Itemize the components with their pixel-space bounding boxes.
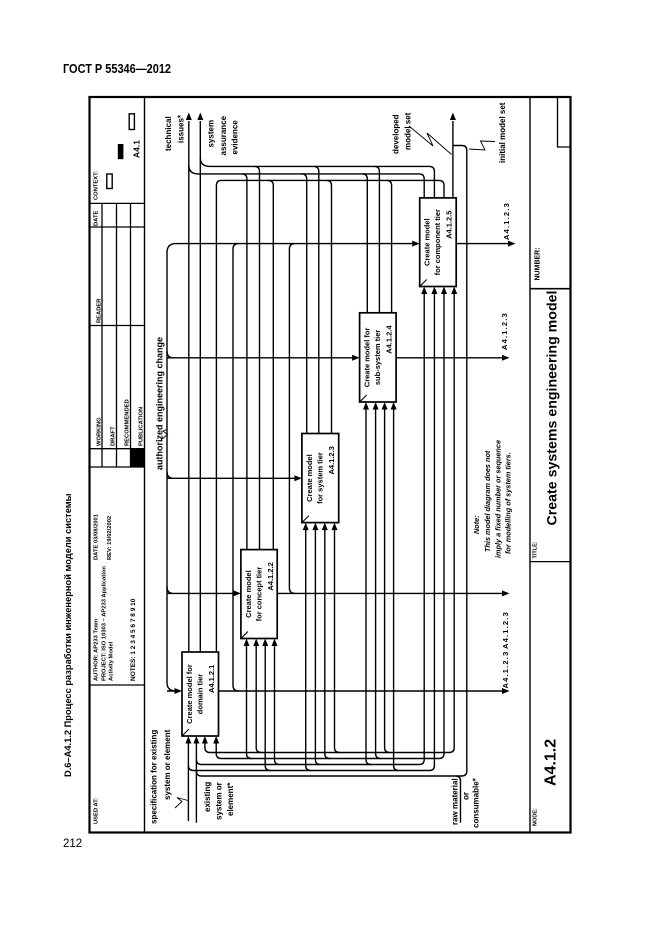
svg-text:Create model: Create model: [244, 570, 253, 618]
svg-text:AUTHOR: AP233 Team: AUTHOR: AP233 Team: [94, 619, 100, 681]
svg-text:NOTES: 1 2 3 4 5 6 7 8: NOTES: 1 2 3 4 5 6 7 8 9 10: [130, 598, 137, 681]
svg-text:evidence: evidence: [231, 120, 240, 155]
svg-text:developed: developed: [392, 114, 401, 154]
svg-text:issues*: issues*: [177, 114, 186, 143]
svg-text:A4.1.2.3: A4.1.2.3: [327, 446, 336, 474]
svg-text:WORKING: WORKING: [97, 417, 103, 446]
svg-text:for modelling of system tiers.: for modelling of system tiers.: [504, 452, 513, 554]
svg-text:specification for existing: specification for existing: [150, 730, 159, 824]
svg-text:sub-system tier: sub-system tier: [373, 330, 382, 386]
svg-text:Create model for: Create model for: [185, 664, 194, 724]
svg-text:NODE:: NODE:: [533, 808, 539, 826]
svg-text:REV: 19/02/2002: REV: 19/02/2002: [107, 516, 113, 560]
svg-text:212: 212: [63, 838, 82, 850]
svg-text:PUBLICATION: PUBLICATION: [139, 407, 145, 446]
svg-text:A4.1.2.3: A4.1.2.3: [501, 611, 510, 649]
svg-text:assurance: assurance: [219, 115, 228, 155]
svg-text:USED AT:: USED AT:: [94, 798, 100, 824]
svg-text:or: or: [462, 792, 471, 800]
svg-text:initial model set: initial model set: [498, 102, 507, 163]
svg-text:DRAFT: DRAFT: [111, 426, 117, 446]
svg-text:for system tier: for system tier: [315, 452, 324, 504]
svg-text:technical: technical: [164, 116, 173, 151]
svg-text:A4.1.2.3: A4.1.2.3: [502, 202, 511, 240]
svg-text:This model diagram does not: This model diagram does not: [483, 450, 492, 552]
svg-text:CONTEXT:: CONTEXT:: [94, 171, 100, 200]
svg-text:A4.1.2.3: A4.1.2.3: [500, 312, 509, 350]
svg-text:A4.1.2.3: A4.1.2.3: [501, 651, 510, 689]
svg-text:consumable*: consumable*: [472, 777, 481, 828]
svg-text:Create model: Create model: [423, 218, 432, 266]
svg-text:A4.1.2: A4.1.2: [543, 739, 560, 786]
svg-text:model set: model set: [404, 112, 413, 150]
svg-text:Activity Model: Activity Model: [109, 641, 115, 681]
svg-text:A4.1.2.1: A4.1.2.1: [207, 665, 216, 693]
svg-text:Create systems engineering mod: Create systems engineering model: [545, 291, 561, 526]
svg-text:imply a fixed number or sequen: imply a fixed number or sequence: [494, 440, 503, 558]
svg-text:Note:: Note:: [472, 515, 481, 534]
svg-text:existing: existing: [203, 782, 212, 812]
svg-text:domain tier: domain tier: [196, 674, 205, 715]
svg-text:D.6–A4.1.2 Процесс разработки: D.6–A4.1.2 Процесс разработки инженерной…: [63, 493, 73, 777]
svg-text:PROJECT: ISO 10303 – AP233 Ap: PROJECT: ISO 10303 – AP233 Application: [102, 566, 108, 681]
svg-text:Create model for: Create model for: [363, 328, 372, 388]
svg-text:DATE: DATE: [94, 211, 100, 226]
svg-text:A4.1.2.4: A4.1.2.4: [385, 325, 394, 354]
svg-text:A4.1.2.2: A4.1.2.2: [266, 562, 275, 590]
svg-text:RECOMMENDED: RECOMMENDED: [125, 399, 131, 446]
svg-text:ГОСТ Р 55346—2012: ГОСТ Р 55346—2012: [63, 62, 171, 76]
svg-text:NUMBER:: NUMBER:: [535, 247, 542, 280]
svg-text:TITLE:: TITLE:: [533, 541, 539, 558]
svg-text:raw material: raw material: [451, 778, 460, 825]
svg-text:A4.1.2.5: A4.1.2.5: [445, 211, 454, 239]
svg-text:DATE 03/08/2001: DATE 03/08/2001: [94, 513, 100, 560]
svg-text:element*: element*: [226, 782, 235, 816]
svg-text:for concept tier: for concept tier: [254, 567, 263, 622]
svg-text:A4.1: A4.1: [132, 140, 142, 158]
svg-text:Create model: Create model: [305, 454, 314, 502]
svg-text:for component tier: for component tier: [433, 209, 442, 275]
svg-text:system: system: [207, 120, 216, 148]
svg-text:system or element: system or element: [163, 729, 172, 800]
svg-text:READER: READER: [97, 298, 103, 323]
svg-text:authorized engineering change: authorized engineering change: [155, 337, 165, 470]
svg-text:system or: system or: [215, 782, 224, 820]
